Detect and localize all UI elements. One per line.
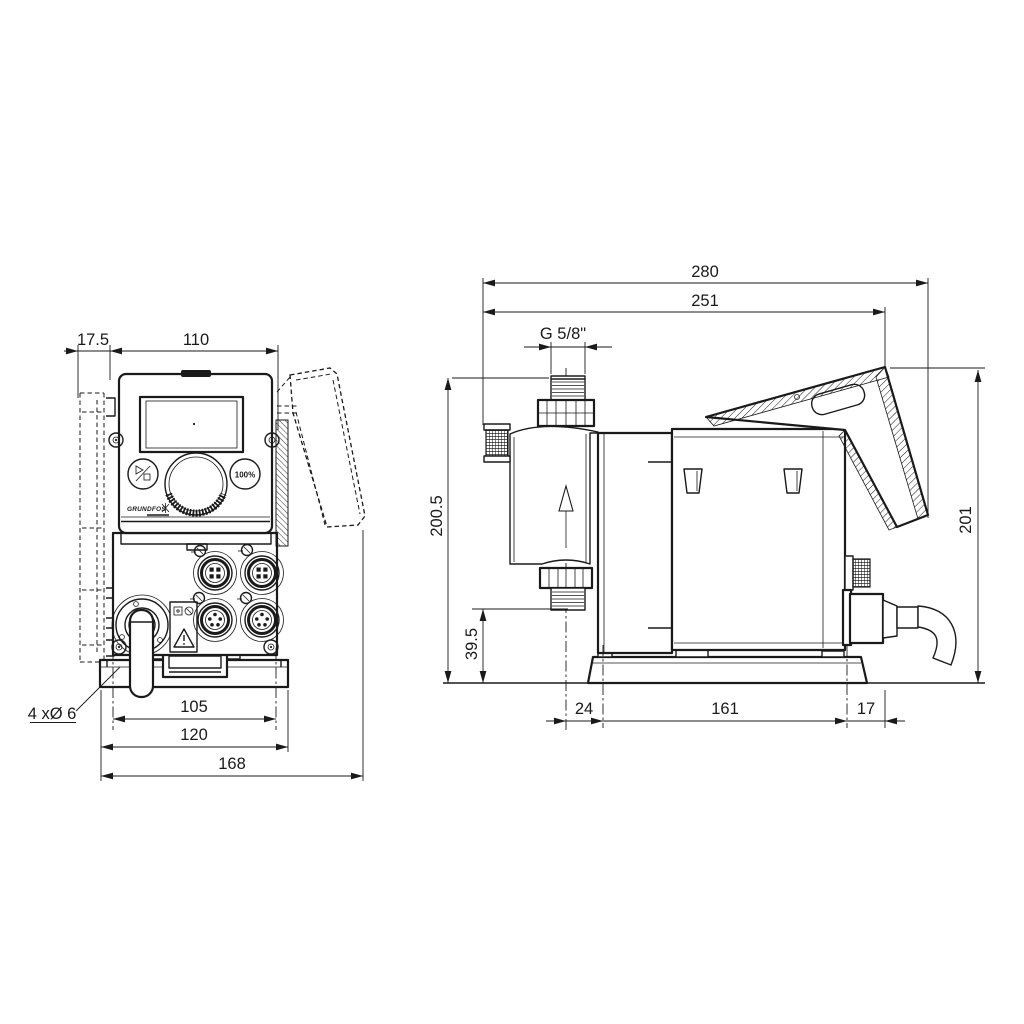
dim-holes-note: 4 xØ 6 <box>28 705 77 723</box>
control-panel: 100% GRUNDFOS <box>109 370 279 533</box>
gland-thread-stub <box>853 559 870 587</box>
side-view: 280 251 G 5/8" 200.5 <box>428 263 985 730</box>
grundfos-wordmark: GRUNDFOS <box>127 506 166 513</box>
cover-hidden-outline <box>277 368 365 527</box>
dim-height-to-connector: 200.5 <box>428 495 446 536</box>
side-base-plate <box>588 650 867 683</box>
hundred-percent-label: 100% <box>235 471 255 480</box>
dosing-head <box>484 368 598 730</box>
dim-plate-offset: 17.5 <box>77 331 109 349</box>
dim-housing-width: 110 <box>183 331 209 349</box>
front-section <box>598 433 672 653</box>
head-body <box>510 426 598 564</box>
dim-total-width: 168 <box>218 755 246 773</box>
plate-clip-top <box>106 398 115 416</box>
panel-top-tab <box>181 370 211 377</box>
dim-connector-clearance: 39.5 <box>463 628 481 660</box>
dim-thread: G 5/8" <box>540 325 586 343</box>
housing-side-strip <box>276 420 288 546</box>
rear-cable-gland <box>843 556 956 665</box>
warning-label <box>170 602 197 652</box>
dim-rear-offset: 17 <box>857 700 875 718</box>
logo-tagline-smudge <box>147 514 169 516</box>
power-cable <box>130 610 153 697</box>
wall-plate-hidden <box>80 393 117 662</box>
dim-total-depth: 280 <box>691 263 719 281</box>
dim-total-height: 201 <box>957 506 975 534</box>
dimensional-drawing: 100% GRUNDFOS <box>0 0 1024 1024</box>
dim-side-hole-spacing: 161 <box>711 700 739 718</box>
main-housing <box>672 429 845 650</box>
pump-body-side <box>598 429 845 653</box>
vent-valve <box>484 424 510 462</box>
dim-head-to-hole: 24 <box>575 700 593 718</box>
dim-hole-spacing: 105 <box>180 698 208 716</box>
dim-plate-width: 120 <box>180 726 208 744</box>
rear-cable <box>918 606 956 665</box>
front-view: 100% GRUNDFOS <box>28 331 365 781</box>
display-cursor-dot <box>193 423 195 425</box>
dim-body-depth: 251 <box>691 292 719 310</box>
